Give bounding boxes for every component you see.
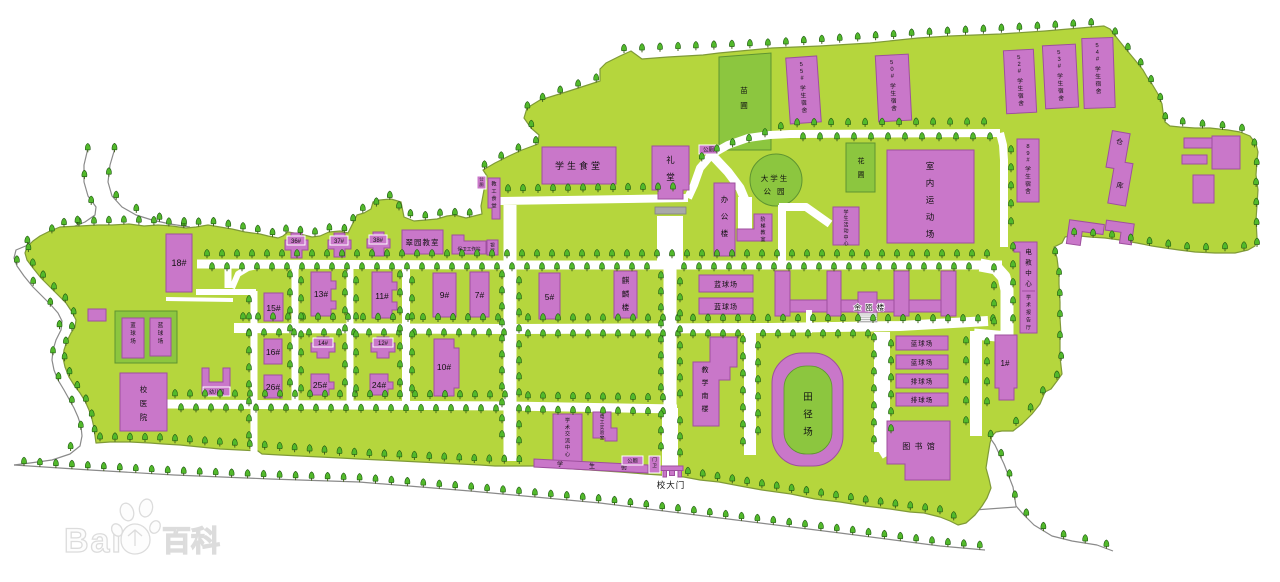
svg-text:室: 室 [600,435,605,441]
svg-text:教: 教 [1025,258,1032,267]
svg-text:交: 交 [565,430,570,438]
svg-text:5: 5 [1057,50,1061,56]
svg-text:运: 运 [926,195,935,205]
svg-text:大学生: 大学生 [761,173,790,183]
svg-text:38#: 38# [373,238,384,244]
svg-text:教: 教 [702,365,709,374]
svg-text:16#: 16# [266,347,280,357]
svg-text:报: 报 [1026,309,1031,316]
svg-text:中: 中 [565,443,570,451]
svg-text:径: 径 [803,409,813,421]
svg-text:18#: 18# [171,258,186,268]
svg-text:金瓯楼: 金瓯楼 [854,302,889,312]
svg-text:36#: 36# [291,239,302,245]
svg-text:电: 电 [1025,247,1032,256]
svg-text:学生食堂: 学生食堂 [555,160,603,171]
svg-text:5#: 5# [545,292,555,302]
svg-text:教: 教 [491,180,497,188]
svg-text:田: 田 [803,392,813,403]
svg-text:圃: 圃 [740,101,748,110]
svg-text:排球场: 排球场 [911,377,934,386]
svg-text:生: 生 [1025,172,1031,180]
svg-text:37#: 37# [334,239,345,245]
svg-text:场: 场 [926,229,935,239]
svg-text:5: 5 [800,69,804,75]
svg-text:教: 教 [760,229,765,236]
svg-text:学: 学 [1095,65,1101,73]
svg-text:舍: 舍 [1096,87,1102,95]
svg-text:26#: 26# [266,382,280,392]
svg-text:办: 办 [721,194,729,204]
svg-text:25#: 25# [313,380,327,390]
svg-text:术: 术 [565,423,570,431]
svg-text:9: 9 [1026,151,1029,157]
svg-text:舍: 舍 [1025,187,1031,195]
svg-text:楼: 楼 [702,404,709,413]
svg-text:宿: 宿 [1095,80,1101,88]
svg-text:蓝球场: 蓝球场 [714,302,738,311]
svg-text:卫: 卫 [652,463,657,468]
svg-text:楼: 楼 [721,228,729,238]
svg-text:流: 流 [565,436,570,444]
svg-text:球: 球 [130,329,136,337]
svg-text:场: 场 [158,337,164,345]
svg-text:动: 动 [843,228,848,235]
svg-text:医: 医 [140,399,148,408]
svg-text:公厕: 公厕 [627,457,637,464]
svg-text:学: 学 [1025,165,1031,173]
svg-text:梯: 梯 [760,223,765,230]
svg-text:蓝: 蓝 [130,321,136,329]
svg-text:翠园教室: 翠园教室 [406,237,440,247]
svg-text:蓝球场: 蓝球场 [714,280,738,289]
svg-text:场: 场 [130,337,136,345]
svg-text:1#: 1# [1001,359,1010,368]
svg-text:堂: 堂 [666,172,675,182]
svg-text:心: 心 [565,451,570,458]
svg-text:9#: 9# [440,290,450,300]
svg-text:公厕: 公厕 [703,147,715,154]
svg-text:学: 学 [557,461,563,469]
svg-text:生: 生 [589,462,595,470]
svg-text:蓝球场: 蓝球场 [911,339,934,348]
svg-text:楼: 楼 [622,302,630,312]
svg-text:球: 球 [158,329,164,337]
svg-text:校大门: 校大门 [657,480,686,490]
svg-text:礼: 礼 [666,155,675,165]
svg-text:11#: 11# [375,291,389,301]
svg-text:内: 内 [926,178,935,188]
svg-text:学: 学 [702,378,709,387]
svg-text:工: 工 [491,188,496,195]
svg-text:公 园: 公 园 [763,187,786,196]
svg-text:10#: 10# [437,362,451,372]
svg-text:学: 学 [565,416,570,424]
svg-text:校: 校 [140,384,148,394]
svg-text:5: 5 [799,62,803,68]
svg-text:百科: 百科 [162,525,220,558]
svg-text:蓝球场: 蓝球场 [911,358,934,367]
svg-text:心: 心 [843,240,848,247]
svg-text:生: 生 [843,215,848,222]
svg-text:5: 5 [1095,43,1098,49]
svg-text:花: 花 [858,156,865,165]
svg-text:0: 0 [890,67,894,73]
svg-text:15#: 15# [266,303,280,313]
svg-text:厅: 厅 [1026,325,1031,331]
svg-text:食: 食 [491,194,497,202]
svg-text:室: 室 [760,236,765,243]
svg-text:8: 8 [1026,144,1029,150]
svg-text:2: 2 [1017,62,1021,68]
svg-text:场: 场 [803,427,813,438]
svg-text:生: 生 [1095,72,1101,80]
svg-text:告: 告 [1026,317,1031,324]
svg-text:阶: 阶 [760,216,765,223]
svg-text:宿: 宿 [1025,180,1031,188]
svg-text:麒: 麒 [622,275,630,285]
svg-text:麟: 麟 [622,289,630,299]
svg-text:7#: 7# [475,290,485,300]
svg-text:苗: 苗 [740,86,748,95]
svg-text:14#: 14# [318,341,329,347]
svg-text:5: 5 [890,60,894,66]
svg-text:心: 心 [1025,280,1032,288]
svg-text:室: 室 [926,161,935,171]
svg-text:公: 公 [721,212,729,221]
svg-text:学: 学 [843,209,848,216]
svg-text:学: 学 [1026,294,1031,301]
svg-text:排球场: 排球场 [911,395,934,404]
svg-text:院: 院 [140,412,148,422]
svg-text:电: 电 [600,413,605,419]
svg-text:图 书 馆: 图 书 馆 [902,441,935,451]
svg-text:5: 5 [1017,55,1021,61]
svg-text:12#: 12# [378,341,389,347]
svg-text:蓝: 蓝 [158,321,164,329]
svg-text:中: 中 [1025,268,1032,277]
svg-text:中: 中 [843,234,848,241]
svg-text:24#: 24# [372,380,386,390]
svg-text:13#: 13# [314,289,328,299]
svg-text:圃: 圃 [858,171,865,179]
svg-text:南: 南 [702,391,709,400]
svg-text:活: 活 [843,221,848,228]
svg-text:术: 术 [1026,302,1031,309]
svg-text:工: 工 [600,419,605,424]
svg-text:堂: 堂 [491,201,496,209]
svg-text:3: 3 [1057,57,1061,63]
svg-text:动: 动 [926,212,935,222]
